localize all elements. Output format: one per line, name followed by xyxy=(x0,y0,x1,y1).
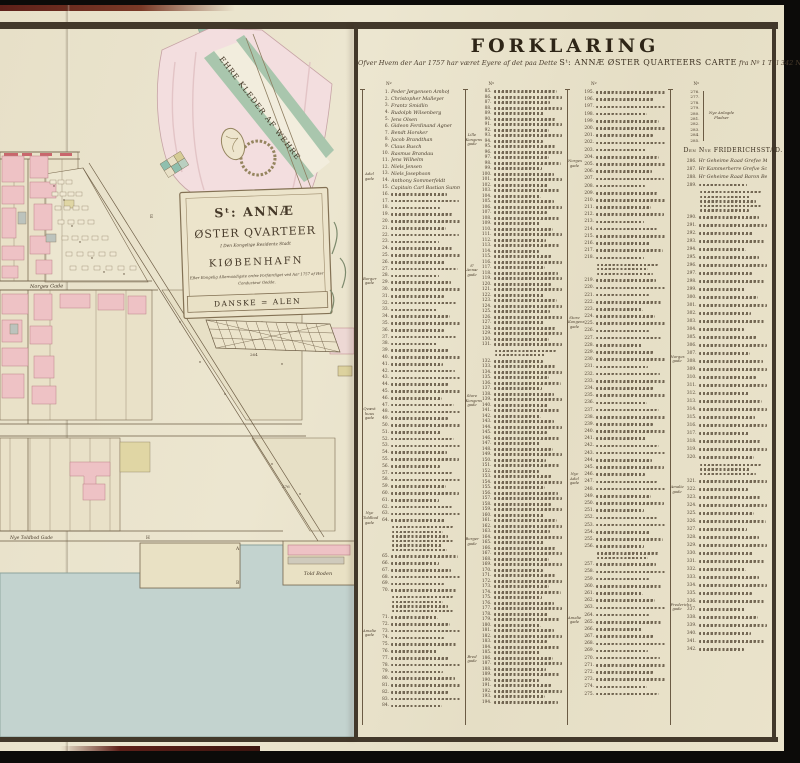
entry-handwriting xyxy=(596,120,659,123)
entry-handwriting xyxy=(596,380,665,383)
column-margin: NorgesgadeAmaliegadeFrederichsgade xyxy=(668,81,684,733)
entry-handwriting xyxy=(494,239,547,242)
entry-handwriting xyxy=(494,530,551,533)
column-content: Nº195.196.197.198.199.200.201.202.203.20… xyxy=(581,81,668,733)
entry-number: 177. xyxy=(479,606,492,611)
parcel-east-yellow xyxy=(338,366,352,376)
legend-entry: 209. xyxy=(581,190,665,197)
entry-number: 10. xyxy=(376,151,389,156)
street-section-label: StoreKongensgade xyxy=(568,316,581,330)
legend-column: NorgesgadeAmaliegadeFrederichsgadeNº276.… xyxy=(668,81,771,733)
entry-handwriting xyxy=(494,404,548,407)
legend-entry: 73. xyxy=(376,628,460,635)
vacant-lots-block: 276.277.278.279.280.281.282.283.284.285.… xyxy=(684,89,768,143)
entry-number: 179. xyxy=(479,617,492,622)
legend-entry: 258. xyxy=(581,568,665,575)
legend-entry: 67. xyxy=(376,567,460,574)
entry-number: 90. xyxy=(479,117,492,122)
legend-entry: 257. xyxy=(581,561,665,568)
entry-number: 161. xyxy=(479,518,492,523)
entry-handwriting xyxy=(391,193,447,196)
entry-number: 171. xyxy=(479,573,492,578)
entry-handwriting xyxy=(494,96,563,99)
entry-number: 300. xyxy=(684,295,697,300)
legend-entry: 16. xyxy=(376,191,460,198)
legend-entry: 75. xyxy=(376,641,460,648)
legend-entry: 58. xyxy=(376,476,460,483)
legend-entry: 10.Rasmus Brandau xyxy=(376,150,460,157)
legend-entry: 80. xyxy=(376,675,460,682)
entry-handwriting xyxy=(699,304,768,307)
entry-number: 230. xyxy=(581,357,594,362)
entry-handwriting xyxy=(596,351,654,354)
legend-entry: 69. xyxy=(376,580,460,587)
legend-entry: 274. xyxy=(581,683,665,690)
entry-owner-name: Gideon Ferdinand Agner xyxy=(391,123,452,129)
entry-number: 169. xyxy=(479,562,492,567)
legend-entry: 305. xyxy=(684,334,768,342)
entry-handwriting xyxy=(391,275,439,278)
entry-number: 316. xyxy=(684,423,697,428)
entry-handwriting xyxy=(596,495,651,498)
entry-number: 54. xyxy=(376,450,389,455)
entry-number: 215. xyxy=(581,234,594,239)
street-section-label: LilleKongensgade xyxy=(466,133,479,147)
legend-entry: 247. xyxy=(581,478,665,485)
entry-handwriting xyxy=(699,216,760,219)
entry-number: 53. xyxy=(376,443,389,448)
entry-handwriting xyxy=(699,632,752,635)
entry-number: 124. xyxy=(479,304,492,309)
entry-handwriting xyxy=(596,488,665,491)
legend-entry: 7.Bendt Horsker xyxy=(376,130,460,137)
entry-handwriting xyxy=(596,373,660,376)
entry-number: 254. xyxy=(581,530,594,535)
entry-number: 145. xyxy=(479,430,492,435)
entry-number: 56. xyxy=(376,464,389,469)
entry-number: 159. xyxy=(479,507,492,512)
entry-handwriting xyxy=(494,233,563,236)
legend-entry: 200. xyxy=(581,125,665,132)
entry-handwriting xyxy=(596,199,665,202)
entry-number: 98. xyxy=(479,161,492,166)
entry-handwriting xyxy=(494,695,546,698)
entry-handwriting xyxy=(596,163,665,166)
legend-entry: 202. xyxy=(581,139,665,146)
entry-number: 80. xyxy=(376,676,389,681)
entry-owner-name: Jacob Brandthan xyxy=(391,137,433,143)
legend-entry: 261. xyxy=(581,590,665,597)
legend-entry: 50. xyxy=(376,422,460,429)
column-no-header: Nº xyxy=(684,81,768,89)
entry-owner-name: Christopher Malleyer xyxy=(391,96,444,102)
entry-number: 146. xyxy=(479,436,492,441)
entry-number: 229. xyxy=(581,350,594,355)
legend-entry: 12.Niels Jensen xyxy=(376,164,460,171)
entry-number: 85. xyxy=(479,89,492,94)
legend-entry: 317. xyxy=(684,430,768,438)
entry-handwriting xyxy=(596,531,650,534)
entry-number: 117. xyxy=(479,265,492,270)
entry-handwriting xyxy=(494,679,540,682)
entry-handwriting xyxy=(494,453,563,456)
parcel-number-1: 264 xyxy=(250,352,258,357)
entry-handwriting xyxy=(391,657,449,660)
legend-entry: 42. xyxy=(376,368,460,375)
legend-entry: 328. xyxy=(684,533,768,541)
entry-number: 324. xyxy=(684,503,697,508)
entry-handwriting xyxy=(699,520,767,523)
note-line xyxy=(392,601,443,603)
entry-number: 5. xyxy=(376,117,389,122)
entry-number: 140. xyxy=(479,403,492,408)
entry-number: 74. xyxy=(376,635,389,640)
entry-handwriting xyxy=(596,142,665,145)
entry-number: 48. xyxy=(376,409,389,414)
legend-entry: 18. xyxy=(376,205,460,212)
legend-entry: 294. xyxy=(684,246,768,254)
entry-handwriting xyxy=(596,545,644,548)
legend-entry: 266. xyxy=(581,626,665,633)
entry-number: 299. xyxy=(684,287,697,292)
entry-number: 256. xyxy=(581,544,594,549)
legend-entry: 23. xyxy=(376,239,460,246)
entry-number: 261. xyxy=(581,591,594,596)
entry-handwriting xyxy=(494,503,552,506)
entry-handwriting xyxy=(494,118,557,121)
entry-number: 244. xyxy=(581,458,594,463)
entry-number: 67. xyxy=(376,568,389,573)
entry-handwriting xyxy=(391,458,459,461)
entry-handwriting xyxy=(391,677,455,680)
legend-entry: 248. xyxy=(581,485,665,492)
entry-number: 202. xyxy=(581,140,594,145)
legend-entry: 41. xyxy=(376,361,460,368)
entry-handwriting xyxy=(699,352,751,355)
column-content: Nº1.Peder Jørgensen Amhof2.Christopher M… xyxy=(376,81,463,733)
entry-handwriting xyxy=(494,310,551,313)
legend-entry: 227. xyxy=(581,335,665,342)
entry-number: 45. xyxy=(376,389,389,394)
entry-handwriting xyxy=(699,400,762,403)
entry-number: 250. xyxy=(581,501,594,506)
entry-number: 220. xyxy=(581,285,594,290)
entry-number: 258. xyxy=(581,569,594,574)
legend-entry: 330. xyxy=(684,549,768,557)
entry-handwriting xyxy=(494,332,563,335)
legend-entry: 53. xyxy=(376,442,460,449)
entry-number: 342. xyxy=(684,647,697,652)
legend-entry: 289. xyxy=(684,181,768,189)
parcel-large-lower xyxy=(252,438,335,531)
entry-handwriting xyxy=(391,431,441,434)
entry-number: 129. xyxy=(479,331,492,336)
legend-column: NorgesgadeStoreKongensgadeNyeAdelgadeAma… xyxy=(565,81,668,733)
entry-number: 208. xyxy=(581,184,594,189)
legend-entry: 243. xyxy=(581,450,665,457)
entry-handwriting xyxy=(391,370,455,373)
entry-handwriting xyxy=(596,315,655,318)
entry-number: 99. xyxy=(479,166,492,171)
entry-handwriting xyxy=(391,671,443,674)
note-line xyxy=(392,596,454,598)
entry-handwriting xyxy=(391,705,442,708)
street-section-label: Norgesgade xyxy=(568,159,581,168)
street-section-label: NyeToldbodgade xyxy=(363,511,376,525)
entry-handwriting xyxy=(494,360,543,363)
entry-number: 252. xyxy=(581,515,594,520)
entry-handwriting xyxy=(494,563,562,566)
entry-handwriting xyxy=(596,517,657,520)
street-section-label: Frederichsgade xyxy=(671,603,684,612)
entry-number: 205. xyxy=(581,162,594,167)
entry-number: 239. xyxy=(581,422,594,427)
entry-handwriting xyxy=(494,283,552,286)
plot-letter-h: H xyxy=(146,536,150,541)
map-canvas: 264 276 E G H A B Norges Gade Nye Toldbo… xyxy=(0,22,356,742)
legend-entry: 19. xyxy=(376,211,460,218)
entry-number: 138. xyxy=(479,392,492,397)
entry-handwriting xyxy=(596,178,664,181)
entry-handwriting xyxy=(494,217,560,220)
entry-rows: 286.Hr Geheime Raad Grefve Moltkes Hotel… xyxy=(684,157,768,653)
entry-handwriting xyxy=(699,552,753,555)
entry-handwriting xyxy=(391,336,456,339)
note-line xyxy=(597,268,648,270)
entry-handwriting xyxy=(494,261,563,264)
legend-entry: 322. xyxy=(684,485,768,493)
entry-handwriting xyxy=(391,424,460,427)
legend-entry: 13.Niels Josephson xyxy=(376,171,460,178)
entry-handwriting xyxy=(391,637,444,640)
entry-handwriting xyxy=(391,664,460,667)
entry-handwriting xyxy=(391,329,444,332)
entry-number: 204. xyxy=(581,155,594,160)
entry-handwriting xyxy=(596,481,658,484)
entry-number: 147. xyxy=(479,441,492,446)
entry-handwriting xyxy=(596,509,644,512)
entry-handwriting xyxy=(699,336,757,339)
entry-number: 187. xyxy=(479,661,492,666)
note-line xyxy=(495,354,546,356)
entry-number: 91. xyxy=(479,122,492,127)
entry-handwriting xyxy=(494,277,563,280)
entry-number: 131. xyxy=(479,342,492,347)
street-section-label: Borgergade xyxy=(363,277,376,286)
entry-number: 330. xyxy=(684,551,697,556)
legend-entry: 77. xyxy=(376,655,460,662)
sheet-border-bottom xyxy=(0,737,778,742)
legend-entry: 321. xyxy=(684,477,768,485)
entry-number: 247. xyxy=(581,479,594,484)
entry-handwriting xyxy=(494,184,548,187)
entry-number: 19. xyxy=(376,212,389,217)
entry-handwriting xyxy=(391,513,460,516)
entry-handwriting xyxy=(494,393,555,396)
entry-number: 13. xyxy=(376,171,389,176)
legend-entry: 199. xyxy=(581,118,665,125)
legend-entry: 250. xyxy=(581,500,665,507)
entry-handwriting xyxy=(596,621,661,624)
entry-handwriting xyxy=(699,224,768,227)
street-section-label: Amaliegade xyxy=(363,629,376,638)
entry-number: 221. xyxy=(581,293,594,298)
entry-handwriting xyxy=(391,302,457,305)
entry-number: 317. xyxy=(684,431,697,436)
entry-number: 17. xyxy=(376,199,389,204)
entry-number: 114. xyxy=(479,249,492,254)
entry-number: 121. xyxy=(479,287,492,292)
legend-entry: 59. xyxy=(376,483,460,490)
entry-handwriting xyxy=(596,466,664,469)
entry-number: 144. xyxy=(479,425,492,430)
entry-number: 236. xyxy=(581,400,594,405)
entry-owner-name: Jens Wilhelm xyxy=(391,157,423,163)
legend-entry: 84. xyxy=(376,703,460,710)
entry-handwriting xyxy=(494,668,547,671)
legend-entry: 303. xyxy=(684,318,768,326)
entry-number: 55. xyxy=(376,457,389,462)
entry-handwriting xyxy=(596,330,649,333)
entry-number: 88. xyxy=(479,106,492,111)
legend-entry: 287.Hr Kammerherre Grefve Schacks Hotel xyxy=(684,165,768,173)
legend-entry: 295. xyxy=(684,254,768,262)
entry-number: 305. xyxy=(684,335,697,340)
legend-entry: 259. xyxy=(581,576,665,583)
entry-handwriting xyxy=(494,492,558,495)
entry-handwriting xyxy=(494,129,550,132)
legend-entry: 78. xyxy=(376,662,460,669)
legend-entry: 260. xyxy=(581,583,665,590)
entry-handwriting xyxy=(494,327,557,330)
note-line xyxy=(392,531,443,533)
entry-number: 287. xyxy=(684,167,697,172)
entry-owner-name: Hr Kammerherre Grefve Schacks Hotel xyxy=(699,166,768,172)
legend-entry: 337. xyxy=(684,605,768,613)
legend-entry: 26. xyxy=(376,259,460,266)
entry-number: 92. xyxy=(479,128,492,133)
legend-entry: 256. xyxy=(581,543,665,550)
column-no-header: Nº xyxy=(376,81,460,89)
entry-handwriting xyxy=(494,519,557,522)
legend-panel: FORKLARING Ofver Hvem der Aar 1757 har v… xyxy=(358,29,772,737)
entry-owner-name: Rudolph Wilsenberg xyxy=(391,110,441,116)
legend-entry: 49. xyxy=(376,415,460,422)
entry-number: 69. xyxy=(376,581,389,586)
legend-entry: 306. xyxy=(684,342,768,350)
entry-number: 111. xyxy=(479,232,492,237)
street-label-toldboden: Told Boden xyxy=(304,571,332,577)
entry-handwriting xyxy=(494,288,563,291)
entry-number: 109. xyxy=(479,221,492,226)
entry-handwriting xyxy=(699,544,768,547)
entry-handwriting xyxy=(596,134,653,137)
entry-number: 165. xyxy=(479,540,492,545)
legend-entry: 76. xyxy=(376,648,460,655)
entry-number: 310. xyxy=(684,375,697,380)
legend-title: FORKLARING xyxy=(358,35,772,57)
entry-number: 235. xyxy=(581,393,594,398)
street-label-norges-gade: Norges Gade xyxy=(29,283,63,290)
entry-number: 238. xyxy=(581,415,594,420)
entry-handwriting xyxy=(494,690,563,693)
entry-handwriting xyxy=(391,288,460,291)
entry-handwriting xyxy=(699,488,748,491)
entry-number: 16. xyxy=(376,192,389,197)
entry-number: 197. xyxy=(581,104,594,109)
entry-handwriting xyxy=(391,417,448,420)
entry-handwriting xyxy=(596,409,659,412)
entry-number: 119. xyxy=(479,276,492,281)
entry-number: 89. xyxy=(479,111,492,116)
entry-number: 150. xyxy=(479,458,492,463)
legend-entry: 241. xyxy=(581,435,665,442)
legend-entry: 17. xyxy=(376,198,460,205)
legend-header: FORKLARING Ofver Hvem der Aar 1757 har v… xyxy=(358,29,772,67)
entry-number: 103. xyxy=(479,188,492,193)
entry-handwriting xyxy=(596,221,644,224)
entry-handwriting xyxy=(391,213,453,216)
entry-number: 27. xyxy=(376,267,389,272)
legend-entry: 314. xyxy=(684,406,768,414)
entry-handwriting xyxy=(596,206,651,209)
entry-handwriting xyxy=(391,261,445,264)
entry-number: 338. xyxy=(684,615,697,620)
legend-entry: 14.Anthony Sommerfeldt xyxy=(376,177,460,184)
entry-number: 21. xyxy=(376,226,389,231)
entry-handwriting xyxy=(699,480,767,483)
legend-entry: 15.Capitain Carl Bastian Summ xyxy=(376,184,460,191)
entry-number: 334. xyxy=(684,583,697,588)
entry-handwriting xyxy=(596,650,648,653)
entry-number: 315. xyxy=(684,415,697,420)
entry-handwriting xyxy=(596,592,643,595)
legend-entry: 204. xyxy=(581,154,665,161)
legend-entry: 254. xyxy=(581,529,665,536)
entry-handwriting xyxy=(699,624,768,627)
entry-number: 73. xyxy=(376,629,389,634)
legend-entry: 54. xyxy=(376,449,460,456)
entry-handwriting xyxy=(494,508,563,511)
entry-handwriting xyxy=(391,295,444,298)
legend-entry: 233. xyxy=(581,378,665,385)
entry-handwriting xyxy=(596,607,665,610)
entry-handwriting xyxy=(391,322,460,325)
entry-number: 148. xyxy=(479,447,492,452)
entry-number: 86. xyxy=(479,95,492,100)
toldboden-shed xyxy=(288,557,344,564)
legend-entry: 240. xyxy=(581,428,665,435)
entry-number: 120. xyxy=(479,282,492,287)
entry-handwriting xyxy=(494,481,563,484)
legend-entry: 20. xyxy=(376,218,460,225)
entry-handwriting xyxy=(391,562,439,565)
entry-number: 340. xyxy=(684,631,697,636)
entry-number: 152. xyxy=(479,469,492,474)
entry-handwriting xyxy=(699,320,764,323)
entry-number: 222. xyxy=(581,300,594,305)
legend-entry: 268. xyxy=(581,640,665,647)
entry-handwriting xyxy=(494,382,562,385)
entry-number: 311. xyxy=(684,383,697,388)
legend-entry: 213. xyxy=(581,218,665,225)
entry-number: 326. xyxy=(684,519,697,524)
legend-entry: 33. xyxy=(376,307,460,314)
legend-entry: 1.Peder Jørgensen Amhof xyxy=(376,89,460,96)
entry-number: 101. xyxy=(479,177,492,182)
entry-number: 304. xyxy=(684,327,697,332)
entry-handwriting xyxy=(596,287,665,290)
